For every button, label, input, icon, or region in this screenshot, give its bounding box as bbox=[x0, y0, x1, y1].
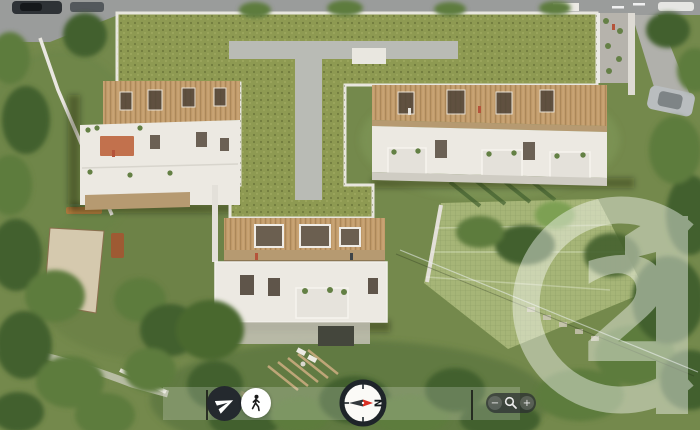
stair-bulkhead bbox=[352, 48, 386, 64]
car-gray bbox=[70, 2, 104, 12]
paper-plane-icon bbox=[215, 394, 235, 414]
magnifier-icon bbox=[504, 396, 518, 410]
toolbar-divider bbox=[471, 390, 473, 420]
zoom-out-button[interactable]: − bbox=[488, 396, 502, 410]
compass-icon: N bbox=[338, 378, 388, 428]
car-white bbox=[658, 2, 694, 11]
person bbox=[612, 24, 615, 30]
walk-mode-button[interactable] bbox=[241, 388, 271, 418]
zoom-controls: − + bbox=[486, 393, 536, 413]
compass-north-label: N bbox=[372, 399, 383, 407]
bench bbox=[111, 233, 124, 258]
awning bbox=[100, 136, 134, 156]
compass[interactable]: N bbox=[338, 378, 388, 428]
zoom-in-button[interactable]: + bbox=[520, 396, 534, 410]
person bbox=[408, 108, 411, 115]
person bbox=[255, 253, 258, 260]
pergola bbox=[318, 326, 354, 346]
property-3d-viewer: 2 bbox=[0, 0, 700, 430]
aerial-3d-view[interactable] bbox=[0, 0, 700, 430]
pan-mode-button[interactable] bbox=[207, 386, 242, 421]
pedestrian-icon bbox=[247, 394, 265, 412]
minus-icon: − bbox=[491, 397, 499, 410]
roof-terrace bbox=[597, 13, 635, 95]
person bbox=[112, 150, 115, 157]
person bbox=[478, 106, 481, 113]
person bbox=[350, 253, 353, 260]
plus-icon: + bbox=[523, 397, 531, 410]
